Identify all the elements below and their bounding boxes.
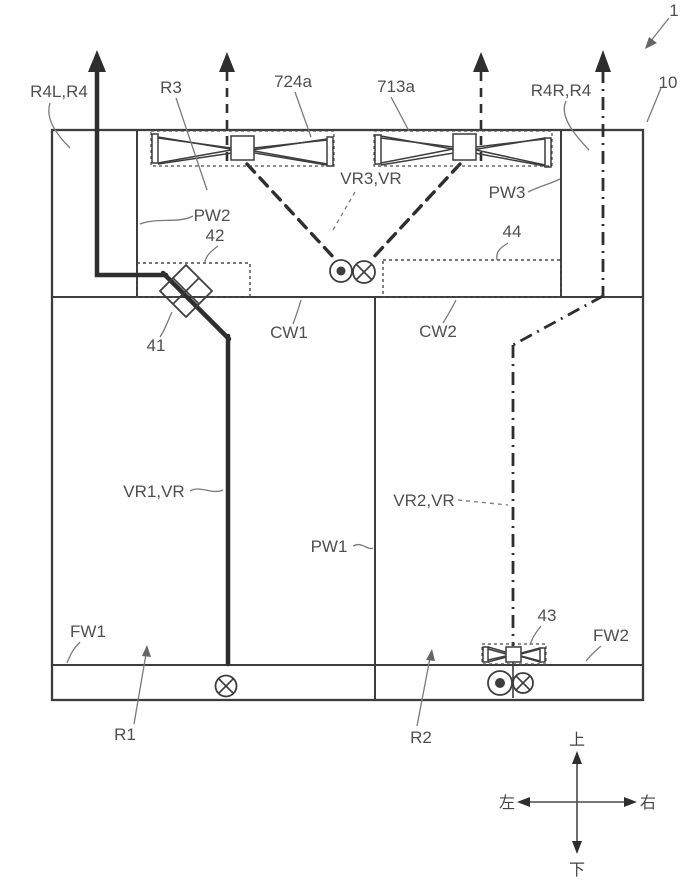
block-44: [383, 260, 561, 297]
leader-cw1: [293, 300, 301, 324]
label-724a: 724a: [274, 72, 312, 91]
flow-lines: [88, 50, 611, 664]
fan-713a-right-bar: [545, 138, 551, 167]
leader-pw3: [528, 179, 560, 192]
fan-713a: [374, 131, 552, 167]
compass-rose: 上 下 左 右: [499, 731, 656, 879]
fan-43-blade-line: [521, 656, 540, 661]
leader-cw2: [443, 300, 456, 323]
label-fw1: FW1: [70, 622, 106, 641]
leader-fw2: [586, 646, 601, 661]
fan-713a-blade-line: [381, 138, 453, 147]
label-43: 43: [538, 606, 557, 625]
patent-figure: 1 10 R4L,R4 R3 724a 713a R4R,R4 VR3,VR P…: [0, 0, 700, 886]
label-cw1: CW1: [270, 323, 308, 342]
leader-713a: [391, 97, 409, 131]
compass-up-arrow-icon: [572, 751, 582, 764]
leader-vr1: [190, 489, 223, 491]
compass-down-arrow-icon: [572, 841, 582, 854]
fan-724a-left-bar: [152, 134, 158, 163]
fan-724a: [151, 131, 334, 166]
fan-724a-right-bar: [327, 137, 333, 166]
leader-ref10: [647, 88, 661, 122]
fan-724a-blade-line: [254, 140, 327, 148]
compass-label-left: 左: [499, 794, 515, 812]
leader-43: [530, 626, 541, 645]
label-vr2-vr: VR2,VR: [393, 491, 454, 510]
leader-r2-arrow-icon: [426, 649, 435, 661]
fan-43-right-bar: [540, 648, 545, 662]
compass-left-arrow-icon: [517, 797, 530, 807]
fan-43-left-bar: [483, 647, 488, 662]
label-cw2: CW2: [419, 322, 457, 341]
fan-724a-blade-line: [158, 138, 231, 148]
vr3-flow-left-branch: [247, 164, 336, 260]
fan-713a-blade-line: [476, 139, 545, 147]
fan43-dot-core-icon: [495, 678, 505, 688]
leader-ref1: [650, 18, 669, 42]
reference-labels: 1 10 R4L,R4 R3 724a 713a R4R,R4 VR3,VR P…: [30, 1, 679, 747]
leader-41: [160, 312, 172, 337]
leader-pw2: [140, 216, 193, 224]
label-41: 41: [147, 336, 166, 355]
label-ref10: 10: [659, 73, 678, 92]
leader-vr3: [333, 192, 355, 230]
vr1-flow-line-duct: [97, 68, 166, 275]
fan-724a-blade-line: [254, 151, 327, 164]
leader-lines: [49, 18, 669, 726]
label-44: 44: [503, 222, 522, 241]
fan-43-blade-line: [521, 649, 540, 654]
label-pw1: PW1: [311, 537, 348, 556]
diagram-canvas: 1 10 R4L,R4 R3 724a 713a R4R,R4 VR3,VR P…: [0, 0, 700, 886]
vr2-outlet-arrow-icon: [595, 50, 611, 72]
leader-42: [205, 246, 218, 262]
label-r3: R3: [160, 78, 182, 97]
pivot-dot-core-icon: [337, 267, 346, 276]
block-42: [137, 263, 250, 297]
leader-r4r: [564, 101, 589, 150]
compass-label-down: 下: [569, 862, 585, 879]
fan-43-hub: [506, 647, 521, 662]
label-r1: R1: [114, 725, 136, 744]
label-vr3-vr: VR3,VR: [340, 169, 401, 188]
label-fw2: FW2: [593, 626, 629, 645]
label-ref1: 1: [669, 1, 678, 20]
fan-713a-blade-line: [381, 149, 453, 163]
fan-724a-flow-arrow-icon: [219, 52, 235, 72]
compass-label-up: 上: [569, 731, 585, 749]
vr2-flow-line-bend: [513, 296, 603, 345]
label-pw3: PW3: [489, 183, 526, 202]
leader-ref1-arrow-icon: [645, 37, 657, 49]
fan-713a-hub: [453, 134, 476, 160]
label-42: 42: [206, 226, 225, 245]
fan-713a-flow-arrow-icon: [473, 52, 489, 72]
label-pw2: PW2: [194, 206, 231, 225]
compass-right-arrow-icon: [624, 797, 637, 807]
leader-fw1: [67, 642, 80, 663]
leader-r1-arrow-icon: [142, 645, 151, 657]
vr1-outlet-arrow-icon: [88, 50, 106, 72]
fan-713a-left-bar: [375, 135, 381, 164]
leader-r2: [417, 658, 430, 726]
leader-44: [497, 243, 508, 260]
leader-pw1: [353, 545, 373, 549]
label-vr1-vr: VR1,VR: [123, 482, 184, 501]
fan-724a-hub: [231, 136, 254, 160]
label-r2: R2: [410, 728, 432, 747]
compass-label-right: 右: [640, 794, 656, 812]
fan-713a-blade-line: [476, 150, 545, 165]
label-713a: 713a: [377, 77, 415, 96]
label-r4r-r4: R4R,R4: [531, 81, 591, 100]
label-r4l-r4: R4L,R4: [30, 82, 88, 101]
leader-vr2: [458, 500, 508, 505]
